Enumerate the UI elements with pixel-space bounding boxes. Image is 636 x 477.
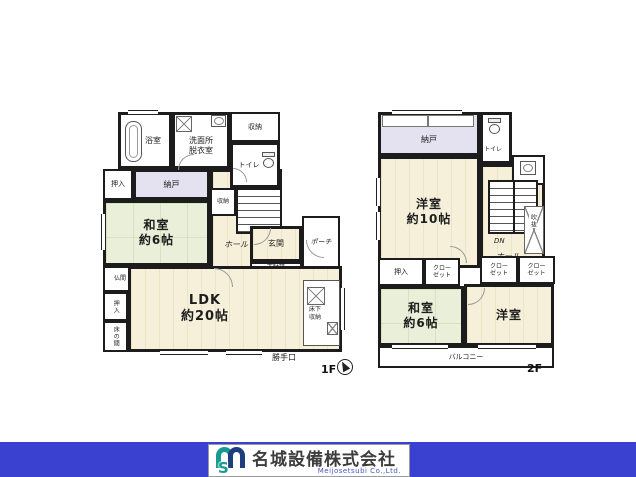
room-washitsu-1f: 和室 約6帖 [103,200,210,266]
underfloor-storage-label: 床下 収納 [309,306,321,321]
tokonoma-label: 床の間 [112,326,120,347]
window-marker [226,350,262,355]
closet-a-label: クロー ゼット [433,265,451,280]
stairs-divider [513,182,515,232]
oshiire-2f-label: 押入 [394,268,408,277]
window-marker [392,110,462,115]
window-marker [160,350,208,355]
window-marker [340,288,345,330]
toilet-icon-1f [262,152,275,168]
window-marker [101,214,106,250]
nando-1f-label: 納戸 [164,180,180,190]
window-marker [376,212,381,240]
room-washitsu-2f: 和室 約6帖 [378,286,464,346]
oshiire-side-label: 押入 [112,300,120,314]
window-marker [392,344,448,349]
hall-1f-label: ホール [224,240,248,250]
storage-stairs-label: 収納 [217,198,229,206]
logo-m-arch-right [228,447,245,468]
washroom-label: 洗面所 脱衣室 [189,126,213,156]
shelf-icon [428,115,474,127]
company-logo-icon: S [214,446,252,475]
floor-label-1f: 1F [321,363,336,376]
washitsu-2f-label: 和室 約6帖 [403,301,438,331]
storage-top-label: 収納 [248,123,262,132]
toilet-2f-label: トイレ [484,146,502,154]
katteguchi-label: 勝手口 [272,353,296,363]
bathtub-icon [125,121,142,162]
stairs-down-label: DN [494,237,505,246]
underfloor-storage-icon [307,287,325,305]
floor-plan-page: 浴室 洗面所 脱衣室 収納 トイレ 押入 納戸 和室 約6帖 収納 UP [0,0,636,477]
room-closet-b: クロー ゼット [480,256,518,284]
room-oshiire-side-1f: 押入 [103,292,128,321]
room-storage-top-1f: 収納 [230,112,280,142]
washing-machine-icon [176,116,192,132]
logo-s-letter: S [218,459,229,477]
toilet-icon-2f [488,118,501,134]
kitchen-sink-icon [327,322,338,335]
compass-icon [337,359,353,375]
room-youshitsu10: 洋室 約10帖 [378,156,480,268]
youshitsu10-label: 洋室 約10帖 [407,197,452,227]
room-oshiire-upper-1f: 押入 [103,169,133,200]
room-storage-stairs: 収納 [210,188,236,216]
closet-b-label: クロー ゼット [490,263,508,278]
washbasin-icon-2f [520,161,536,175]
room-bath: 浴室 [118,112,172,169]
genkan-label: 玄関 [268,239,284,249]
window-marker [128,110,158,115]
company-logo-box: S 名城設備株式会社 Meijosetsubi Co.,Ltd. [208,444,410,477]
window-marker [376,178,381,206]
company-name-en: Meijosetsubi Co.,Ltd. [318,467,401,475]
washitsu-1f-label: 和室 約6帖 [139,218,174,248]
fukinuke-label: 吹抜 [529,214,537,228]
shelf-icon [382,115,428,127]
room-nando-1f: 納戸 [133,169,210,200]
closet-c-label: クロー ゼット [527,263,545,278]
floor-label-2f: 2F [527,362,542,375]
compass-needle-icon [338,360,350,373]
room-closet-c: クロー ゼット [518,256,555,284]
ldk-label: LDK 約20帖 [181,293,289,326]
window-marker [478,344,536,349]
oshiire-upper-label: 押入 [111,180,125,189]
butsuma-label: 仏間 [114,275,126,283]
room-oshiire-2f: 押入 [378,258,424,286]
balcony-label: バルコニー [449,353,484,362]
washbasin-icon [211,115,226,127]
room-tokonoma: 床の間 [103,321,128,352]
youshitsu-2f-label: 洋室 [496,308,522,323]
